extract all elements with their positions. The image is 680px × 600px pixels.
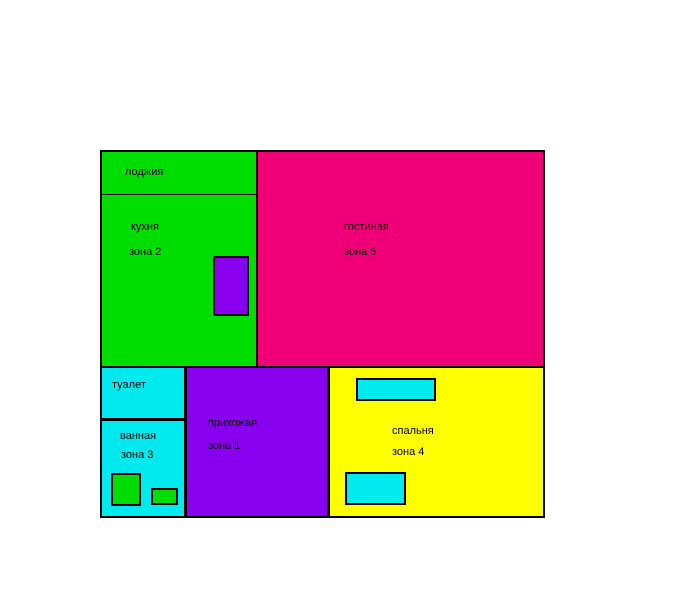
bedroom-fixture-bottom (345, 472, 406, 505)
room-kitchen-zone-label: зона 2 (129, 246, 161, 259)
room-living: гостиная зона 5 (258, 152, 543, 366)
room-loggia: лоджия (102, 152, 256, 194)
room-bathroom-zone-label: зона 3 (121, 449, 153, 462)
bedroom-fixture-top (356, 378, 436, 401)
room-toilet: туалет (102, 368, 184, 418)
floor-plan: лоджия кухня зона 2 гостиная зона 5 туал… (100, 150, 545, 518)
room-living-zone-label: зона 5 (344, 246, 376, 259)
room-bedroom: спальня зона 4 (330, 368, 543, 516)
room-bedroom-zone-label: зона 4 (392, 446, 424, 459)
room-bathroom-label: ванная (120, 430, 156, 443)
bathroom-fixture-large (111, 473, 141, 506)
kitchen-fixture-block (213, 256, 249, 316)
room-toilet-label: туалет (112, 379, 146, 392)
room-bathroom: ванная зона 3 (102, 421, 184, 516)
room-kitchen: кухня зона 2 (102, 195, 256, 366)
room-hallway: прихожая зона 1 (187, 368, 327, 516)
room-loggia-label: лоджия (125, 166, 163, 179)
bathroom-fixture-small (151, 488, 178, 505)
room-kitchen-label: кухня (131, 221, 159, 234)
room-living-label: гостиная (344, 221, 389, 234)
room-bedroom-label: спальня (392, 425, 434, 438)
room-hallway-zone-label: зона 1 (208, 440, 240, 453)
room-hallway-label: прихожая (208, 417, 257, 430)
